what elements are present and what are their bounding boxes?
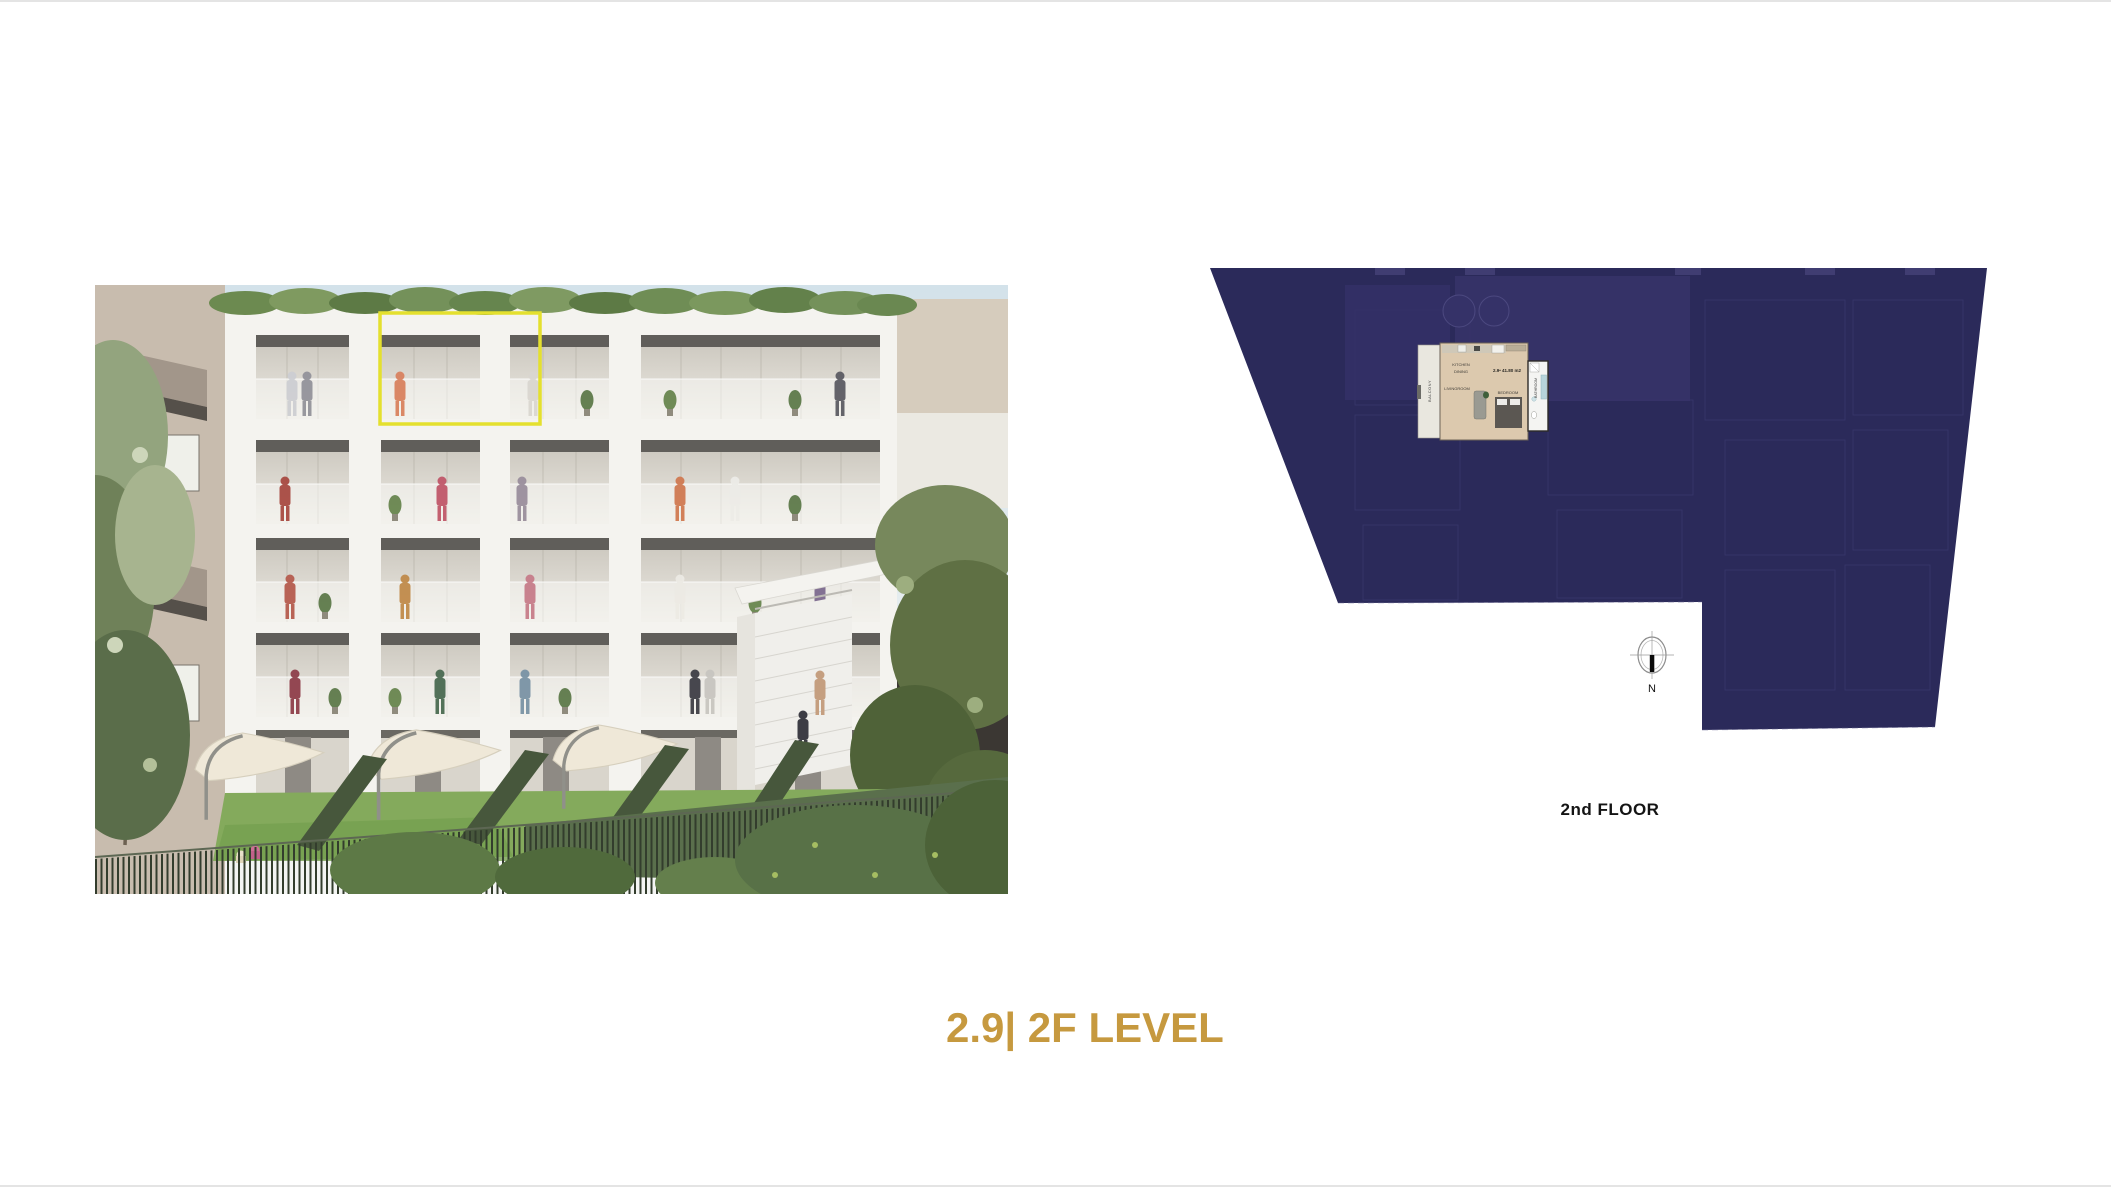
building-rendering-svg	[95, 285, 1008, 894]
slide-title: 2.9| 2F LEVEL	[946, 1004, 1224, 1052]
unit-balcony: BALCONY	[1417, 345, 1440, 438]
compass-north-needle	[1650, 655, 1655, 672]
bedroom-label: BEDROOM	[1498, 390, 1519, 395]
slide-top-border	[0, 0, 2111, 2]
north-compass: N	[1630, 631, 1674, 695]
unit-interior: KITCHEN DINING 2.9• 41.80 m2 LIVINGROOM …	[1440, 343, 1528, 440]
unit-area-label: 2.9• 41.80 m2	[1493, 368, 1522, 373]
dining-label: DINING	[1454, 369, 1468, 374]
compass-north-label: N	[1648, 683, 1656, 695]
floor-label: 2nd FLOOR	[1205, 800, 2015, 820]
floor-plan-svg: BALCONY KITCHEN DINING 2.9• 41.80 m2 LIV…	[1205, 240, 2015, 816]
bathroom-label: BATHROOM	[1534, 378, 1538, 398]
floor-plan-image: BALCONY KITCHEN DINING 2.9• 41.80 m2 LIV…	[1205, 240, 2015, 870]
balcony-label: BALCONY	[1427, 380, 1432, 402]
building-rendering-image	[95, 285, 1008, 894]
kitchen-label: KITCHEN	[1452, 362, 1470, 367]
livingroom-label: LIVINGROOM	[1444, 386, 1470, 391]
highlighted-unit: BALCONY KITCHEN DINING 2.9• 41.80 m2 LIV…	[1417, 343, 1548, 440]
unit-bathroom: BATHROOM	[1528, 361, 1548, 431]
